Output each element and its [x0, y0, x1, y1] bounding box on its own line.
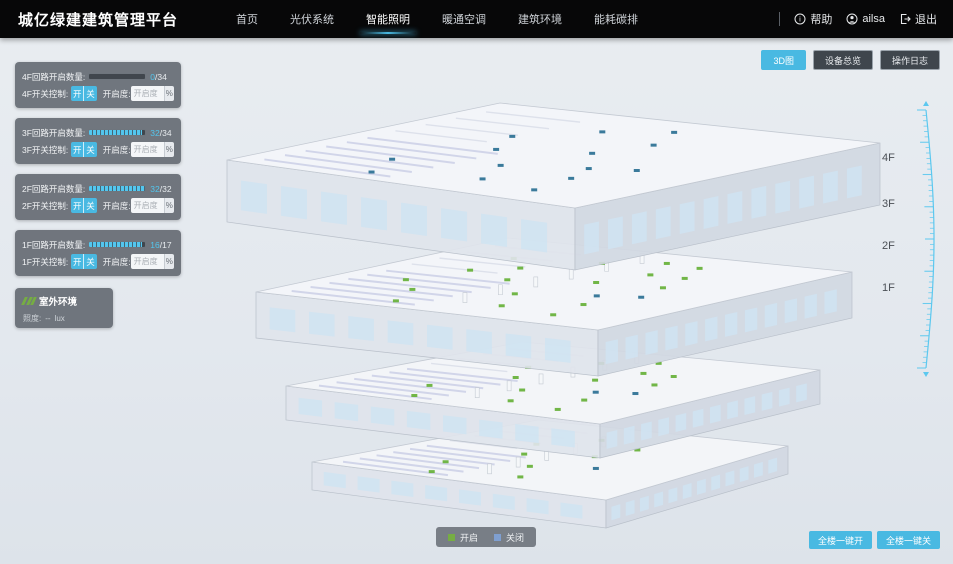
circuit-count-label: 3F回路开启数量: — [22, 127, 85, 139]
floor-panel-4f: 4F回路开启数量:0/344F开关控制:开关开启度:% — [15, 62, 181, 108]
dim-input[interactable] — [131, 198, 164, 213]
circuit-count-value: 32/32 — [150, 184, 171, 194]
outdoor-env-panel: 室外环境 照度: -- lux — [15, 288, 113, 328]
floor-mark-2f[interactable]: 2F — [882, 240, 895, 252]
header-divider — [779, 12, 780, 26]
floor-mark-3f[interactable]: 3F — [882, 198, 895, 210]
circuit-progress-bar — [88, 185, 146, 192]
switch-off-button[interactable]: 关 — [84, 198, 97, 213]
circuit-count-value: 0/34 — [150, 72, 167, 82]
circuit-count-label: 4F回路开启数量: — [22, 71, 85, 83]
floor-panel-2f: 2F回路开启数量:32/322F开关控制:开关开启度:% — [15, 174, 181, 220]
switch-on-button[interactable]: 开 — [71, 254, 84, 269]
legend-on-label: 开启 — [460, 531, 478, 544]
top-header: 城亿绿建建筑管理平台 首页 光伏系统 智能照明 暖通空调 建筑环境 能耗碳排 i… — [0, 0, 953, 38]
legend-off: 关闭 — [494, 531, 524, 544]
switch-on-button[interactable]: 开 — [71, 142, 84, 157]
switch-control-label: 4F开关控制: — [22, 88, 68, 100]
logout-button[interactable]: 退出 — [899, 11, 937, 27]
view-buttons: 3D图 设备总览 操作日志 — [761, 50, 940, 70]
app-title: 城亿绿建建筑管理平台 — [18, 9, 178, 30]
nav-smart-lighting[interactable]: 智能照明 — [350, 0, 426, 39]
circuit-count-value: 32/34 — [150, 128, 171, 138]
circuit-progress-bar — [88, 129, 146, 136]
percent-button[interactable]: % — [164, 142, 174, 157]
circuit-progress-bar — [88, 241, 146, 248]
switch-control-label: 1F开关控制: — [22, 256, 68, 268]
switch-on-button[interactable]: 开 — [71, 86, 84, 101]
dim-label: 开启度: — [103, 256, 131, 268]
all-off-button[interactable]: 全楼一键关 — [877, 531, 940, 549]
dim-label: 开启度: — [103, 88, 131, 100]
on-off-switch: 开关 — [71, 254, 96, 269]
on-off-switch: 开关 — [71, 198, 96, 213]
floor-mark-1f[interactable]: 1F — [882, 282, 895, 294]
dim-label: 开启度: — [103, 200, 131, 212]
outdoor-panel-title: 室外环境 — [39, 294, 77, 308]
illuminance-unit: lux — [55, 314, 65, 323]
help-icon: i — [794, 13, 806, 25]
nav-pv-system[interactable]: 光伏系统 — [274, 0, 350, 39]
dim-input[interactable] — [131, 254, 164, 269]
switch-off-button[interactable]: 关 — [84, 86, 97, 101]
dim-input[interactable] — [131, 86, 164, 101]
operation-log-button[interactable]: 操作日志 — [880, 50, 940, 70]
on-off-switch: 开关 — [71, 86, 96, 101]
legend-off-swatch — [494, 534, 501, 541]
help-label: 帮助 — [810, 11, 832, 27]
leaf-slashes-icon — [23, 297, 35, 305]
floor-panel-3f: 3F回路开启数量:32/343F开关控制:开关开启度:% — [15, 118, 181, 164]
percent-button[interactable]: % — [164, 198, 174, 213]
help-button[interactable]: i 帮助 — [794, 11, 832, 27]
view-3d-button[interactable]: 3D图 — [761, 50, 806, 70]
user-name: ailsa — [862, 13, 885, 25]
legend-on: 开启 — [448, 531, 478, 544]
device-overview-button[interactable]: 设备总览 — [813, 50, 873, 70]
nav-home[interactable]: 首页 — [220, 0, 274, 39]
nav-hvac[interactable]: 暖通空调 — [426, 0, 502, 39]
on-off-switch: 开关 — [71, 142, 96, 157]
nav-energy-carbon[interactable]: 能耗碳排 — [578, 0, 654, 39]
header-right: i 帮助 ailsa 退出 — [779, 11, 937, 27]
user-menu[interactable]: ailsa — [846, 13, 885, 25]
circuit-count-value: 16/17 — [150, 240, 171, 250]
illuminance-value: -- — [45, 314, 50, 323]
floor-panel-1f: 1F回路开启数量:16/171F开关控制:开关开启度:% — [15, 230, 181, 276]
logout-icon — [899, 13, 911, 25]
circuit-progress-bar — [88, 73, 146, 80]
illuminance-label: 照度: — [23, 313, 41, 324]
switch-control-label: 3F开关控制: — [22, 144, 68, 156]
main-nav: 首页 光伏系统 智能照明 暖通空调 建筑环境 能耗碳排 — [220, 0, 654, 39]
all-on-button[interactable]: 全楼一键开 — [809, 531, 872, 549]
dim-input[interactable] — [131, 142, 164, 157]
switch-off-button[interactable]: 关 — [84, 254, 97, 269]
switch-off-button[interactable]: 关 — [84, 142, 97, 157]
smart-lighting-page: 城亿绿建建筑管理平台 首页 光伏系统 智能照明 暖通空调 建筑环境 能耗碳排 i… — [0, 0, 953, 564]
dim-label: 开启度: — [103, 144, 131, 156]
legend-off-label: 关闭 — [506, 531, 524, 544]
logout-label: 退出 — [915, 11, 937, 27]
percent-button[interactable]: % — [164, 86, 174, 101]
floor-mark-4f[interactable]: 4F — [882, 152, 895, 164]
legend-on-swatch — [448, 534, 455, 541]
circuit-count-label: 1F回路开启数量: — [22, 239, 85, 251]
user-icon — [846, 13, 858, 25]
lamp-state-legend: 开启 关闭 — [436, 527, 536, 547]
switch-control-label: 2F开关控制: — [22, 200, 68, 212]
svg-text:i: i — [800, 15, 802, 24]
switch-on-button[interactable]: 开 — [71, 198, 84, 213]
nav-building-env[interactable]: 建筑环境 — [502, 0, 578, 39]
global-buttons: 全楼一键开 全楼一键关 — [809, 531, 940, 549]
circuit-count-label: 2F回路开启数量: — [22, 183, 85, 195]
percent-button[interactable]: % — [164, 254, 174, 269]
